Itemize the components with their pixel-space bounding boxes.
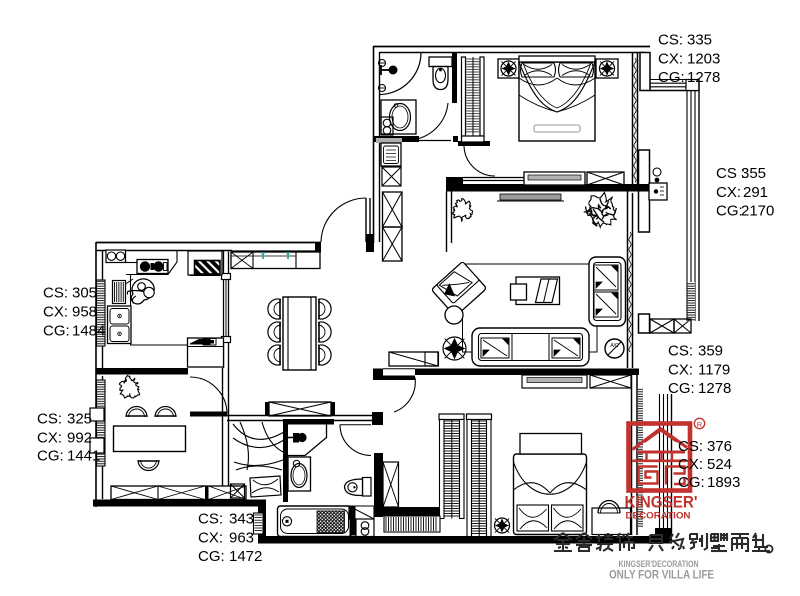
svg-text:CX:: CX:: [43, 304, 68, 321]
svg-text:1278: 1278: [698, 380, 731, 397]
svg-text:CG:: CG:: [678, 474, 705, 491]
svg-text:343: 343: [229, 511, 254, 528]
svg-text:963: 963: [229, 530, 254, 547]
svg-text:CG:: CG:: [43, 323, 70, 340]
svg-text:CS:: CS:: [43, 285, 68, 302]
svg-text:CG:: CG:: [37, 448, 64, 465]
svg-text:524: 524: [707, 456, 732, 473]
svg-text:CS:: CS:: [658, 32, 683, 49]
svg-text:CG:: CG:: [198, 548, 225, 565]
svg-text:CS:: CS:: [198, 511, 223, 528]
svg-text:1484: 1484: [72, 323, 105, 340]
svg-text:CG:: CG:: [658, 69, 685, 86]
svg-text:CX:: CX:: [37, 430, 62, 447]
svg-text:DECORATION: DECORATION: [626, 511, 691, 521]
svg-text:291: 291: [743, 184, 768, 201]
svg-text:KINGSER'DECORATION: KINGSER'DECORATION: [619, 559, 699, 569]
svg-text:305: 305: [72, 285, 97, 302]
svg-text:1278: 1278: [687, 69, 720, 86]
svg-text:1441: 1441: [67, 448, 100, 465]
svg-text:CS:: CS:: [37, 411, 62, 428]
svg-text:355: 355: [741, 165, 766, 182]
svg-text:CS:: CS:: [668, 343, 693, 360]
svg-text:A/C: A/C: [610, 343, 619, 349]
svg-text:CX:: CX:: [658, 51, 683, 68]
svg-text:335: 335: [687, 32, 712, 49]
svg-text:359: 359: [698, 343, 723, 360]
svg-text:1179: 1179: [698, 362, 730, 379]
svg-text:992: 992: [67, 430, 92, 447]
svg-text:CX:: CX:: [198, 530, 223, 547]
svg-text:ONLY FOR VILLA LIFE: ONLY FOR VILLA LIFE: [609, 570, 714, 582]
svg-text:KINGSER': KINGSER': [625, 494, 698, 512]
svg-text:R: R: [697, 420, 703, 429]
svg-text:CX:: CX:: [716, 184, 741, 201]
svg-text:CG:: CG:: [716, 203, 743, 220]
svg-text:2170: 2170: [741, 203, 774, 220]
svg-text:CX:: CX:: [678, 456, 703, 473]
svg-text:CG:: CG:: [668, 380, 695, 397]
svg-text:1893: 1893: [707, 474, 740, 491]
svg-text:376: 376: [707, 438, 732, 455]
svg-text:1203: 1203: [687, 51, 720, 68]
svg-text:958: 958: [72, 304, 97, 321]
svg-text:325: 325: [67, 411, 92, 428]
svg-text:1472: 1472: [229, 548, 262, 565]
svg-text:CS:: CS:: [678, 438, 703, 455]
svg-text:CX:: CX:: [668, 362, 693, 379]
